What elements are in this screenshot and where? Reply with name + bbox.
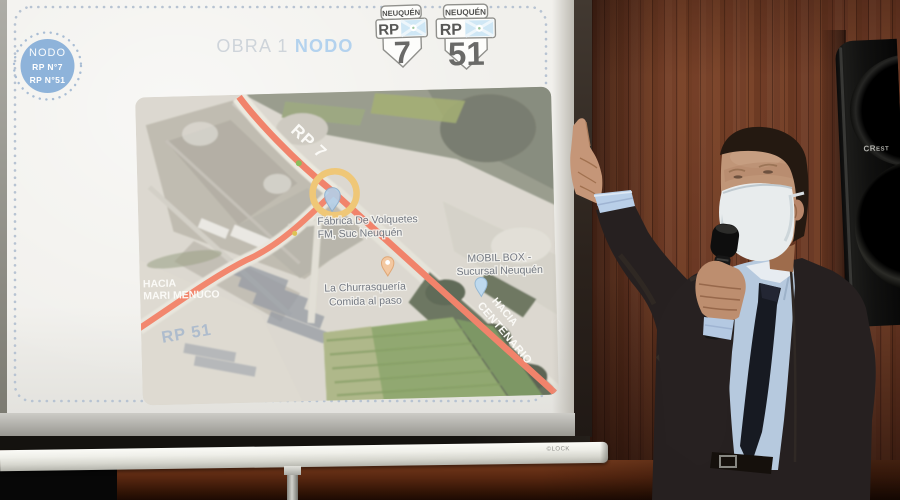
- svg-text:NEUQUÉN: NEUQUÉN: [382, 8, 420, 18]
- svg-text:NEUQUÉN: NEUQUÉN: [445, 7, 486, 18]
- svg-text:7: 7: [393, 35, 411, 71]
- svg-text:51: 51: [448, 35, 485, 73]
